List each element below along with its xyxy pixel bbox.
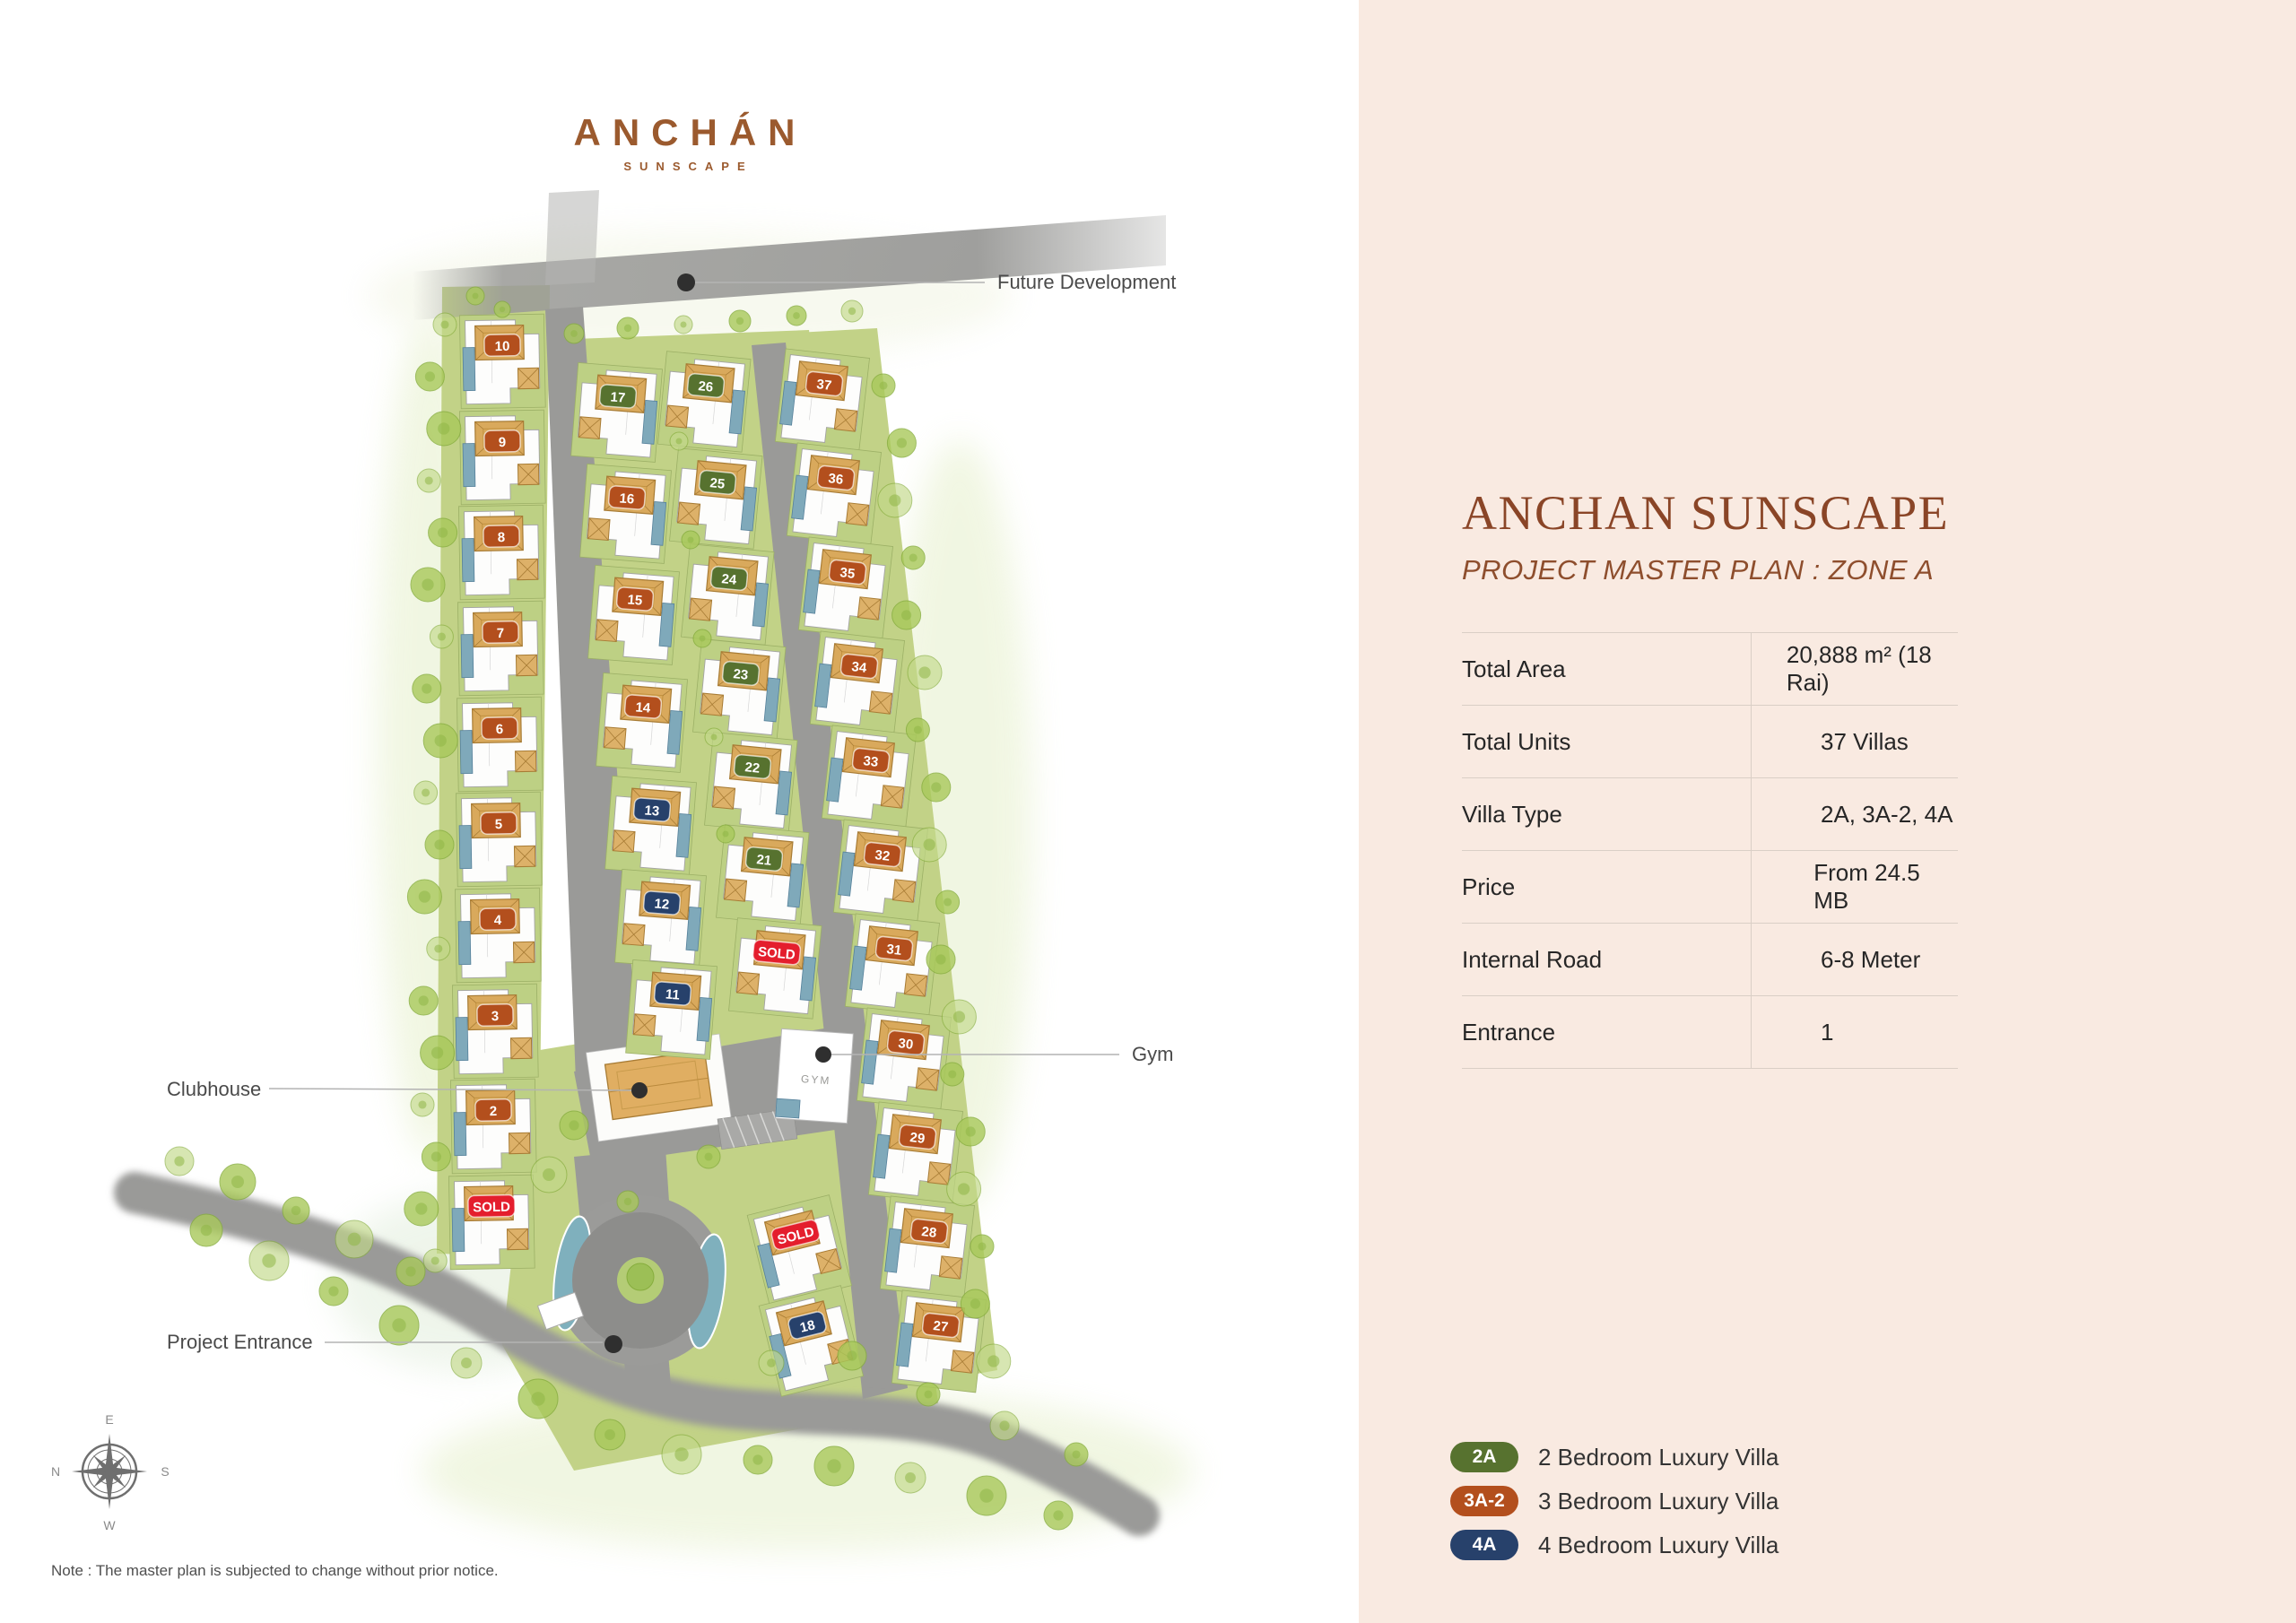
villa-plot-22: 22 [705,733,798,834]
villa-plot-16: 16 [580,464,672,563]
tree-icon [838,1341,866,1370]
tree-icon [901,546,925,569]
tree-icon [729,310,751,332]
tree-icon [433,313,457,336]
svg-text:13: 13 [644,803,660,819]
svg-text:31: 31 [886,942,903,959]
tree-icon [912,828,946,862]
plot-badge: 3 [477,1004,513,1027]
villa-plot-28: 28 [880,1196,974,1298]
legend-label: 3 Bedroom Luxury Villa [1538,1488,1779,1515]
plot-badge: 26 [687,373,725,398]
tree-icon [494,301,510,317]
tree-icon [977,1344,1011,1378]
legend-row-2a: 2A 2 Bedroom Luxury Villa [1450,1442,1779,1472]
svg-text:16: 16 [619,490,635,507]
disclaimer-note: Note : The master plan is subjected to c… [51,1562,499,1579]
villa-plot-4: 4 [455,888,541,983]
svg-text:21: 21 [756,852,772,869]
spec-row-total-units: Total Units 37 Villas [1462,706,1958,778]
spec-value: 37 Villas [1751,728,1909,756]
tree-icon [926,945,955,974]
tree-icon [220,1164,256,1200]
spec-value: 20,888 m² (18 Rai) [1717,641,1958,697]
tree-icon [413,674,441,703]
plot-badge: 22 [734,754,771,779]
compass-w: W [103,1518,116,1532]
logo-wordmark: ANCHÁN [562,111,807,154]
plot-badge: 10 [484,334,520,357]
villa-plot-17: 17 [571,362,663,462]
tree-icon [941,1063,964,1086]
tree-icon [560,1111,588,1140]
tree-icon [411,568,445,602]
spec-row-villa-type: Villa Type 2A, 3A-2, 4A [1462,778,1958,851]
svg-text:9: 9 [499,435,507,450]
tree-icon [427,412,461,446]
villa-plot-32: 32 [833,820,927,922]
north-road-stub [545,190,599,285]
svg-text:35: 35 [839,565,857,582]
villa-plot-8: 8 [458,505,544,600]
project-entrance-dot [604,1335,622,1353]
tree-icon [319,1277,348,1306]
legend-badge-4a: 4A [1450,1530,1518,1560]
villa-plot-15: 15 [588,565,680,664]
villa-plot-11: 11 [626,959,717,1059]
tree-icon [421,1036,455,1070]
tree-icon [961,1289,989,1318]
project-title: ANCHAN SUNSCAPE [1462,485,1949,541]
tree-icon [878,483,912,517]
master-plan-page: ANCHÁN SUNSCAPE [0,0,2296,1623]
villa-plot-3: 3 [452,984,538,1079]
plot-badge: 25 [699,470,736,495]
plot-badge: 17 [599,384,637,408]
svg-text:34: 34 [851,659,868,676]
tree-icon [936,890,960,914]
plot-badge: 11 [654,981,691,1005]
master-plan-map: GYM 1098765432SOLD1716151413121126252423… [0,0,1359,1623]
svg-text:24: 24 [721,571,738,588]
villa-plot-36: 36 [787,443,881,545]
tree-icon [617,317,639,339]
tree-icon [283,1197,309,1224]
spec-value: From 24.5 MB [1744,859,1958,915]
tree-icon [693,629,711,647]
site-map-area: ANCHÁN SUNSCAPE [0,0,1359,1623]
svg-text:17: 17 [610,389,626,405]
svg-text:10: 10 [495,339,510,354]
tree-icon [411,1093,434,1116]
plot-badge: 27 [922,1313,960,1338]
villa-plot-10: 10 [459,314,545,409]
spec-value: 6-8 Meter [1751,946,1920,974]
spec-table: Total Area 20,888 m² (18 Rai) Total Unit… [1462,632,1958,1069]
plot-badge: 33 [852,748,890,773]
legend-row-3a2: 3A-2 3 Bedroom Luxury Villa [1450,1486,1779,1516]
tree-icon [990,1411,1019,1440]
spec-label: Villa Type [1462,801,1751,829]
svg-text:15: 15 [627,592,643,608]
svg-text:23: 23 [733,666,749,683]
plot-badge: 12 [643,890,681,915]
plot-badge: 6 [482,717,517,740]
spec-value: 2A, 3A-2, 4A [1751,801,1952,829]
legend-label: 2 Bedroom Luxury Villa [1538,1444,1779,1471]
svg-text:22: 22 [744,759,761,777]
tree-icon [423,724,457,758]
spec-label: Entrance [1462,1019,1751,1046]
svg-text:30: 30 [898,1036,915,1053]
tree-icon [249,1241,289,1280]
tree-icon [165,1147,194,1176]
spec-label: Total Units [1462,728,1751,756]
tree-icon [417,469,440,492]
tree-icon [887,429,916,457]
tree-icon [697,1145,720,1168]
tree-icon [531,1157,567,1193]
villa-plot-31: 31 [845,914,939,1016]
tree-icon [429,518,457,547]
legend-badge-2a: 2A [1450,1442,1518,1472]
anchan-logo: ANCHÁN SUNSCAPE [562,111,807,173]
tree-icon [947,1172,981,1206]
villa-plot-37: 37 [775,349,869,451]
villa-plot-6: 6 [457,697,543,792]
villa-plot-34: 34 [810,631,904,733]
plot-badge: 7 [483,621,518,644]
villa-plot-2: 2 [450,1079,536,1174]
svg-text:33: 33 [863,753,880,770]
tree-icon [190,1214,222,1246]
svg-text:14: 14 [635,699,652,716]
tree-icon [908,655,942,690]
tree-icon [451,1348,482,1378]
tree-icon [335,1220,373,1258]
villa-type-legend: 2A 2 Bedroom Luxury Villa 3A-2 3 Bedroom… [1450,1442,1779,1574]
tree-icon [744,1445,772,1474]
plot-badge: 29 [899,1124,936,1150]
tree-icon [1044,1501,1073,1530]
svg-text:26: 26 [698,378,714,395]
svg-text:28: 28 [921,1224,938,1241]
gym-dot [815,1046,831,1063]
tree-icon [892,601,921,629]
plot-badge: 34 [840,654,878,679]
tree-icon [956,1117,985,1146]
plot-badge: 16 [608,485,646,509]
spec-label: Internal Road [1462,946,1751,974]
plot-badge: 36 [817,465,855,490]
plot-badge: 35 [829,560,866,585]
tree-icon [466,287,484,305]
plot-badge: SOLD [468,1195,515,1218]
gym-building: GYM [776,1028,854,1123]
villa-plot-14: 14 [596,673,688,772]
plot-badge: 15 [616,586,654,611]
tree-icon [427,937,450,960]
tree-icon [759,1350,784,1376]
plot-badge: 14 [624,694,662,718]
villa-plot-24: 24 [682,544,775,646]
spec-label: Total Area [1462,655,1717,683]
tree-icon [396,1257,425,1286]
spec-value: 1 [1751,1019,1833,1046]
tree-icon [415,362,444,391]
future-development-dot [677,273,695,291]
svg-text:4: 4 [494,913,502,928]
villa-plot-5: 5 [456,792,542,887]
tree-icon [414,781,438,804]
tree-icon [407,880,441,914]
spec-label: Price [1462,873,1744,901]
plot-badge: 8 [483,525,519,548]
svg-text:3: 3 [491,1009,500,1024]
tree-icon [518,1379,558,1419]
tree-icon [967,1476,1006,1515]
tree-icon [841,300,863,322]
svg-text:32: 32 [874,847,891,864]
tree-icon [422,1142,450,1171]
plot-badge: SOLD [752,940,801,966]
svg-text:6: 6 [496,722,504,737]
svg-text:8: 8 [498,530,506,545]
clubhouse-label: Clubhouse [167,1078,261,1100]
villa-plot-35: 35 [798,537,892,639]
svg-text:37: 37 [816,377,833,394]
gym-building-label: GYM [801,1072,831,1087]
villa-plot-23: 23 [693,639,787,741]
plot-badge: 32 [864,842,901,867]
tree-icon [922,773,951,802]
villa-plot-33: 33 [822,725,916,828]
tree-icon [682,531,700,549]
legend-badge-3a2: 3A-2 [1450,1486,1518,1516]
svg-text:25: 25 [709,475,726,492]
tree-icon [379,1306,419,1345]
tree-icon [595,1419,625,1450]
compass-n: N [51,1464,60,1479]
tree-icon [430,625,453,648]
compass-s: S [161,1464,169,1479]
spec-row-internal-road: Internal Road 6-8 Meter [1462,924,1958,996]
tree-icon [787,306,806,325]
tree-icon [917,1383,940,1406]
svg-text:27: 27 [933,1318,950,1335]
plot-badge: 4 [480,908,516,931]
svg-text:7: 7 [497,626,505,641]
villa-plot-12: 12 [615,869,707,968]
villa-plot-sold: SOLD [729,918,822,1020]
gym-label: Gym [1132,1043,1173,1065]
villa-plot-sold: SOLD [448,1175,535,1270]
tree-icon [404,1192,439,1226]
plot-badge: 31 [875,936,913,961]
plot-badge: 2 [475,1099,511,1122]
tree-icon [670,432,688,450]
spec-row-price: Price From 24.5 MB [1462,851,1958,924]
project-subtitle: PROJECT MASTER PLAN : ZONE A [1462,554,1934,586]
tree-icon [872,374,895,397]
tree-icon [617,1191,639,1212]
plot-badge: 23 [722,661,760,686]
tree-icon [705,728,723,746]
plot-badge: 37 [805,371,843,396]
tree-icon [674,316,692,334]
tree-icon [970,1235,994,1258]
plot-badge: 13 [633,797,671,821]
villa-plot-13: 13 [605,776,697,875]
plot-badge: 24 [710,566,748,591]
plot-badge: 5 [481,812,517,835]
spec-row-entrance: Entrance 1 [1462,996,1958,1069]
clubhouse-dot [631,1082,648,1098]
plot-badge: 30 [887,1030,925,1055]
tree-icon [423,1249,447,1272]
logo-subtitle: SUNSCAPE [562,160,807,173]
compass-e: E [105,1412,113,1427]
tree-icon [814,1446,854,1486]
spec-row-total-area: Total Area 20,888 m² (18 Rai) [1462,633,1958,706]
svg-text:5: 5 [495,817,503,832]
compass-rose-icon: E N S W [51,1412,170,1532]
tree-icon [906,718,929,742]
tree-icon [942,1000,976,1034]
tree-icon [895,1462,926,1493]
villa-plot-7: 7 [457,601,544,696]
tree-icon [717,825,735,843]
plot-badge: 9 [484,430,520,453]
project-entrance-label: Project Entrance [167,1331,313,1353]
tree-icon [662,1435,701,1474]
svg-text:SOLD: SOLD [473,1200,510,1216]
plot-badge: 28 [910,1219,948,1244]
tree-icon [1065,1443,1088,1466]
tree-icon [564,324,584,343]
svg-text:2: 2 [490,1104,498,1119]
svg-text:12: 12 [654,896,670,912]
villa-plot-9: 9 [459,410,545,505]
legend-label: 4 Bedroom Luxury Villa [1538,1532,1779,1559]
future-development-label: Future Development [997,271,1176,293]
svg-text:29: 29 [909,1130,926,1147]
villa-plot-30: 30 [857,1008,951,1110]
svg-text:36: 36 [828,471,845,488]
svg-text:11: 11 [665,986,680,1002]
legend-row-4a: 4A 4 Bedroom Luxury Villa [1450,1530,1779,1560]
tree-icon [425,830,454,859]
plot-badge: 21 [745,846,783,872]
info-panel: ANCHAN SUNSCAPE PROJECT MASTER PLAN : ZO… [1359,0,2296,1623]
tree-icon [409,986,438,1015]
